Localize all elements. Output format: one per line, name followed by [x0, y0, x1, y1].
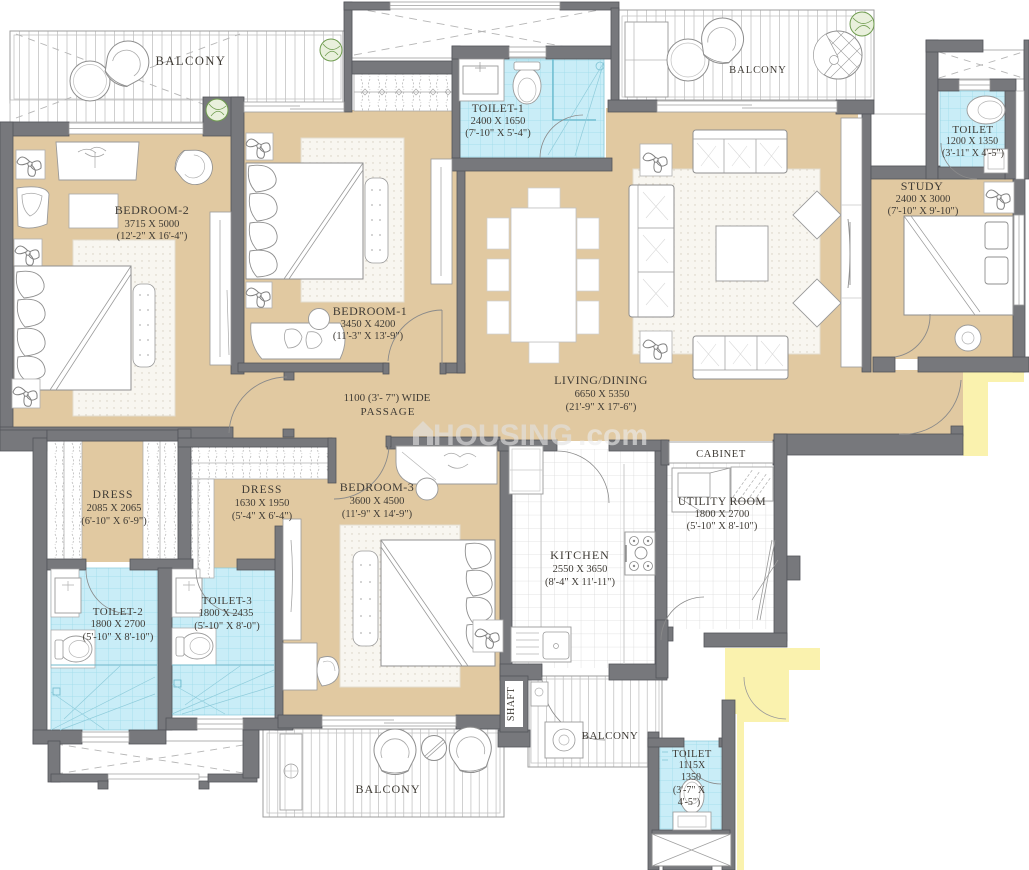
svg-text:2550 X 3650: 2550 X 3650 [553, 564, 608, 575]
svg-text:1115X: 1115X [679, 760, 706, 771]
svg-text:3450 X 4200: 3450 X 4200 [341, 319, 396, 330]
svg-text:(7'-10" X 9'-10"): (7'-10" X 9'-10") [888, 206, 959, 217]
svg-text:(12'-2" X 16'-4"): (12'-2" X 16'-4") [117, 231, 188, 242]
svg-text:HOUSING: HOUSING [433, 419, 573, 452]
svg-text:(8'-4" X 11'-11"): (8'-4" X 11'-11") [545, 577, 615, 588]
svg-text:TOILET: TOILET [672, 749, 712, 760]
svg-text:2400 X 3000: 2400 X 3000 [896, 194, 951, 205]
svg-text:BALCONY: BALCONY [355, 782, 420, 796]
svg-text:(7'-10" X 5'-4"): (7'-10" X 5'-4") [465, 128, 531, 139]
svg-text:BALCONY: BALCONY [582, 730, 639, 742]
svg-text:(5'-10" X 8'-10"): (5'-10" X 8'-10") [687, 521, 758, 532]
svg-text:SHAFT: SHAFT [506, 687, 517, 721]
svg-text:2400 X 1650: 2400 X 1650 [471, 116, 526, 127]
svg-text:(11'-9" X 14'-9"): (11'-9" X 14'-9") [342, 509, 413, 520]
svg-text:(5'-10" X 8'-0"): (5'-10" X 8'-0") [194, 621, 260, 632]
svg-text:.com: .com [578, 419, 648, 452]
svg-text:(11'-3" X 13'-9"): (11'-3" X 13'-9") [333, 331, 404, 342]
svg-text:3715 X 5000: 3715 X 5000 [125, 219, 180, 230]
svg-text:UTILITY ROOM: UTILITY ROOM [678, 496, 766, 508]
svg-text:1800 X 2435: 1800 X 2435 [199, 608, 254, 619]
svg-text:STUDY: STUDY [901, 179, 944, 193]
svg-text:3600 X 4500: 3600 X 4500 [350, 496, 405, 507]
svg-text:TOILET-2: TOILET-2 [93, 606, 143, 618]
svg-text:6650 X 5350: 6650 X 5350 [575, 389, 630, 400]
svg-text:1800 X 2700: 1800 X 2700 [91, 619, 146, 630]
svg-text:2085 X 2065: 2085 X 2065 [87, 503, 142, 514]
svg-text:PASSAGE: PASSAGE [361, 406, 416, 418]
svg-text:BALCONY: BALCONY [156, 54, 227, 68]
svg-text:1100 (3'- 7") WIDE: 1100 (3'- 7") WIDE [344, 392, 431, 404]
svg-text:1800 X 2700: 1800 X 2700 [695, 509, 750, 520]
svg-text:TOILET-1: TOILET-1 [472, 103, 525, 115]
svg-text:DRESS: DRESS [242, 484, 283, 496]
svg-text:CABINET: CABINET [696, 449, 746, 460]
svg-text:1200 X 1350: 1200 X 1350 [946, 136, 998, 147]
svg-text:KITCHEN: KITCHEN [550, 548, 610, 562]
svg-text:1630 X 1950: 1630 X 1950 [235, 498, 290, 509]
svg-text:(5'-4" X 6'-4"): (5'-4" X 6'-4") [232, 511, 293, 522]
svg-text:(3'-11" X 4'-5"): (3'-11" X 4'-5") [942, 148, 1004, 159]
svg-text:BEDROOM-3: BEDROOM-3 [340, 480, 415, 494]
svg-text:TOILET-3: TOILET-3 [202, 595, 252, 607]
svg-text:4'-5"): 4'-5") [678, 797, 701, 808]
svg-text:1350: 1350 [681, 772, 701, 783]
svg-text:TOILET: TOILET [952, 124, 993, 136]
svg-text:BALCONY: BALCONY [729, 65, 787, 76]
svg-text:BEDROOM-2: BEDROOM-2 [115, 203, 190, 217]
svg-text:(5'-10" X 8'-10"): (5'-10" X 8'-10") [83, 632, 154, 643]
svg-text:(3'-7" X: (3'-7" X [673, 785, 706, 796]
svg-text:DRESS: DRESS [93, 489, 134, 501]
svg-text:(21'-9" X 17'-6"): (21'-9" X 17'-6") [566, 402, 637, 413]
svg-text:BEDROOM-1: BEDROOM-1 [333, 304, 408, 318]
svg-text:(6'-10" X 6'-9"): (6'-10" X 6'-9") [81, 516, 147, 527]
svg-text:LIVING/DINING: LIVING/DINING [554, 373, 648, 387]
